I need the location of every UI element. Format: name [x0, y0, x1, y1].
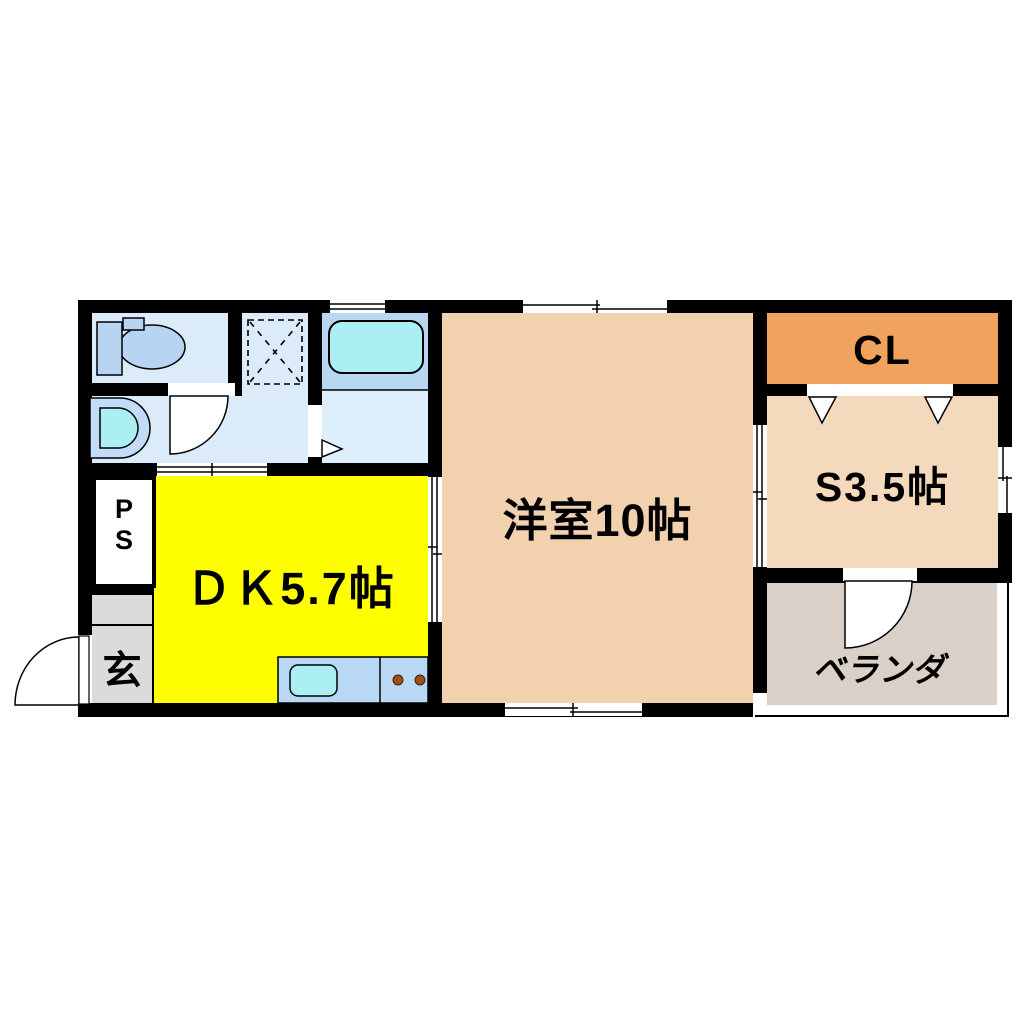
- pipe-space-label-line1: P: [92, 494, 156, 525]
- closet-label: CL: [767, 327, 998, 374]
- service-room-label: S3.5帖: [767, 453, 998, 513]
- dining-kitchen-label: ＤＫ5.7帖: [154, 552, 428, 617]
- laundry-space-dashed-box-icon: [248, 320, 302, 384]
- stove-burners-icon: [415, 675, 425, 685]
- toilet-icon: [97, 318, 185, 375]
- kitchen-counter-icon: [278, 657, 428, 703]
- wash-basin-icon: [90, 398, 150, 458]
- floor-plan: ＤＫ5.7帖 洋室10帖 S3.5帖 CL ベランダ 玄 P S: [0, 0, 1020, 1020]
- kitchen-sink-icon: [290, 665, 337, 696]
- bathtub-icon: [322, 321, 428, 390]
- pipe-space-label-line2: S: [92, 525, 156, 556]
- veranda-label: ベランダ: [762, 643, 1002, 691]
- stove-burners-icon: [393, 675, 403, 685]
- pipe-space-label: P S: [92, 494, 156, 556]
- western-room-label: 洋室10帖: [442, 484, 753, 549]
- entrance-label: 玄: [92, 640, 152, 696]
- folding-door-triangle-icon: [322, 397, 952, 457]
